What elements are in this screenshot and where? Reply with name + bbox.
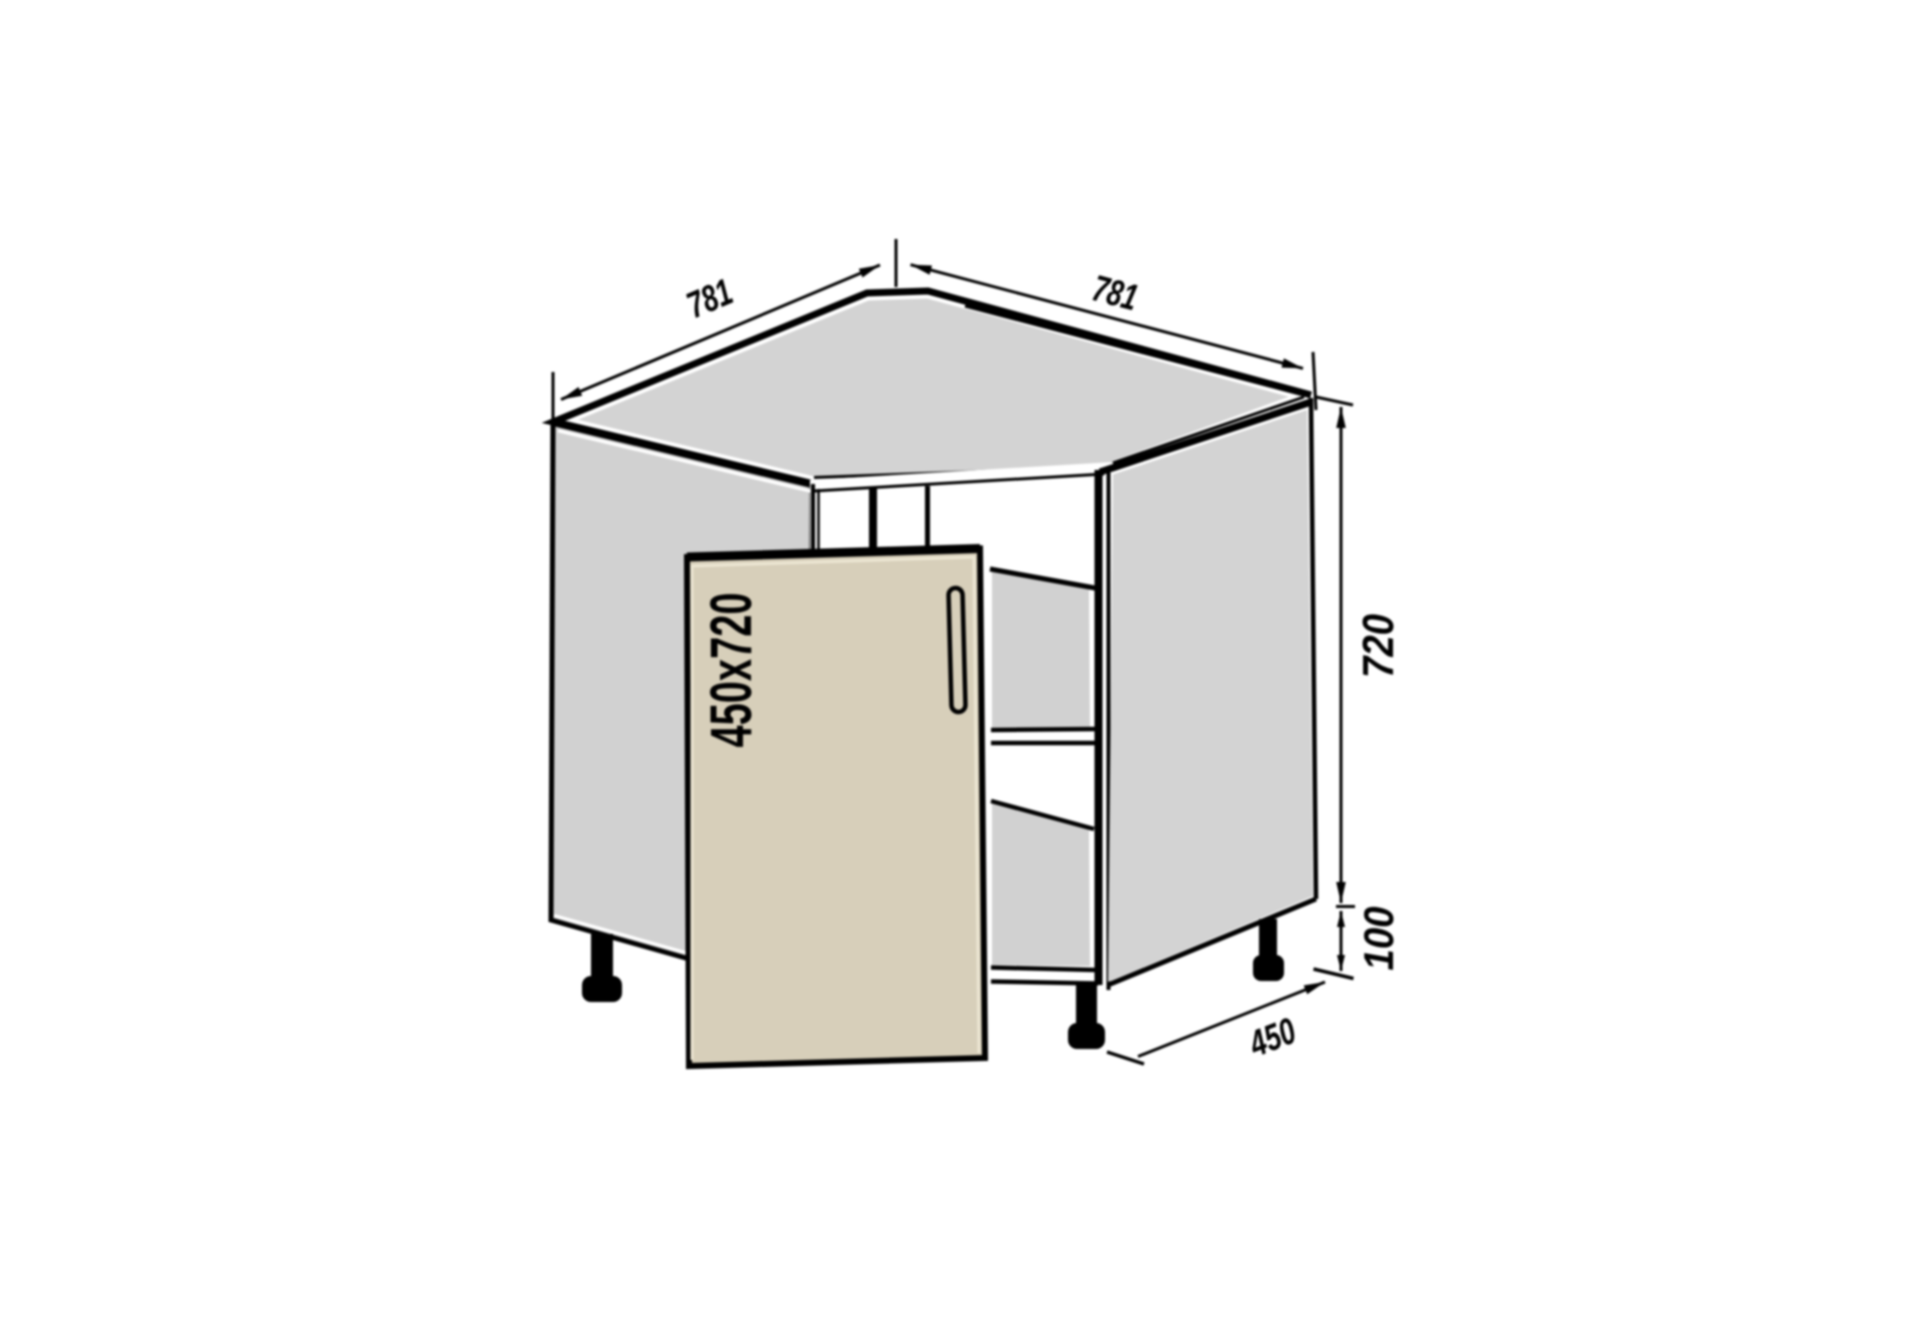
svg-text:450x720: 450x720 bbox=[699, 593, 764, 748]
svg-text:720: 720 bbox=[1354, 614, 1403, 678]
svg-text:100: 100 bbox=[1355, 907, 1402, 971]
